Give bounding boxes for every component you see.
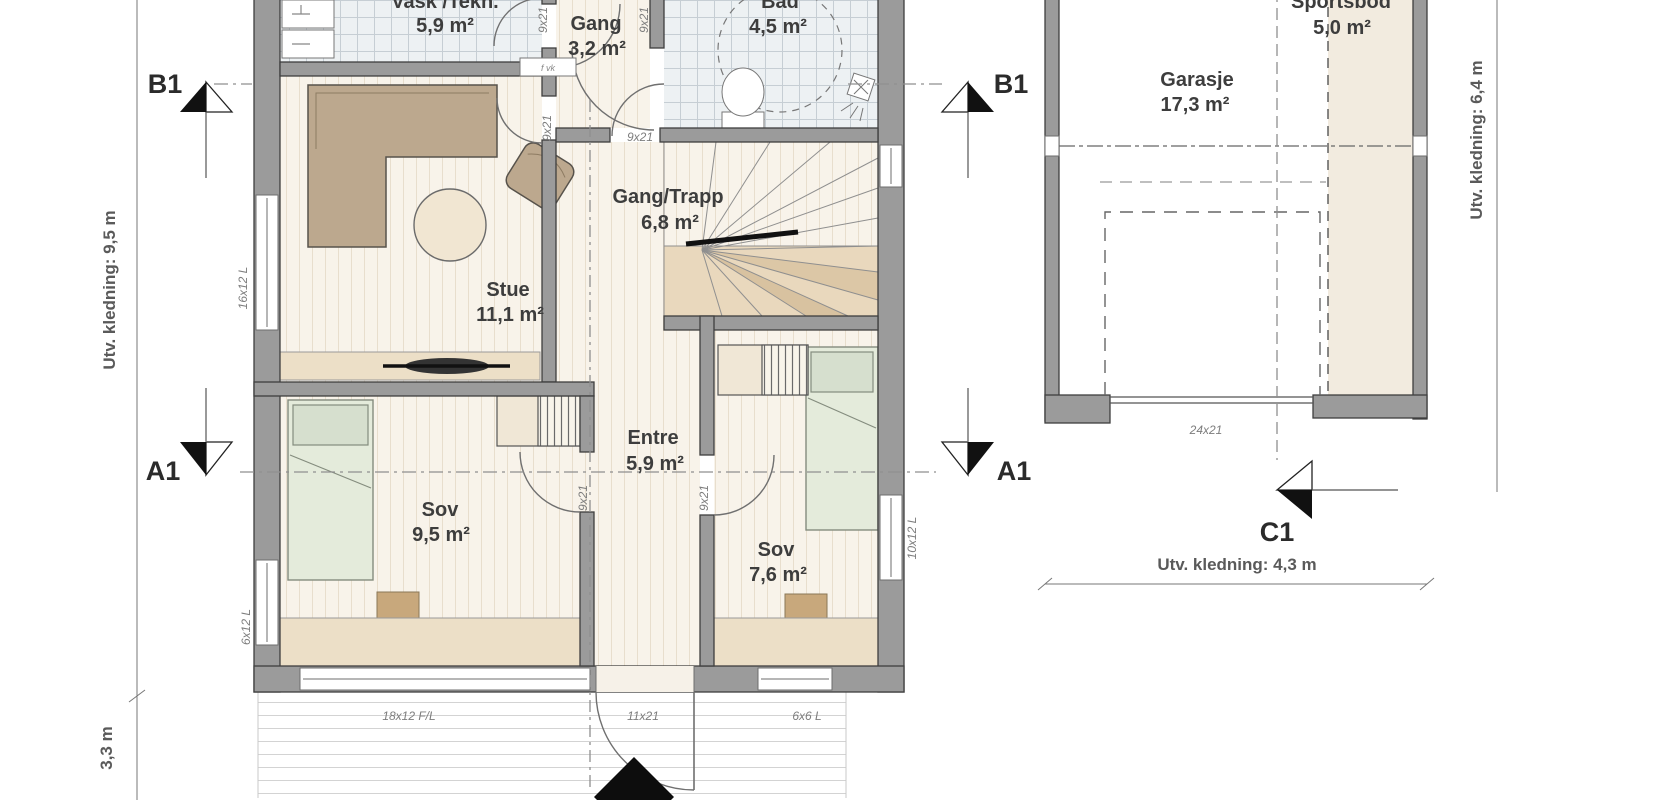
marker-label-c1: C1: [1260, 517, 1295, 547]
marker-label-b1: B1: [148, 69, 183, 99]
door-label-9x21: 9x21: [697, 485, 711, 511]
room-label-sov1: Sov: [422, 499, 460, 521]
room-label-gang-trapp: Gang/Trapp: [612, 186, 723, 208]
entry-door-threshold: [596, 666, 694, 692]
room-area-vask: 5,9 m²: [416, 15, 474, 37]
room-label-vask: Vask /Tekn.: [391, 0, 498, 13]
room-area-sov1: 9,5 m²: [412, 524, 470, 546]
bed-pillow: [293, 405, 368, 445]
room-area-bad: 4,5 m²: [749, 16, 807, 38]
room-label-stue: Stue: [486, 279, 529, 301]
section-marker-a1-left: A1: [146, 388, 232, 486]
room-area-gang-trapp: 6,8 m²: [641, 212, 699, 234]
toilet-bowl: [722, 68, 764, 116]
room-area-entre: 5,9 m²: [626, 453, 684, 475]
window-label-10x12: 10x12 L: [905, 517, 919, 560]
terrace-deck: [258, 692, 846, 798]
marker-label-a1: A1: [146, 456, 181, 486]
dim-label-garage-front: Utv. kledning: 4,3 m: [1157, 555, 1316, 574]
room-area-gang: 3,2 m²: [568, 38, 626, 60]
bed-pillow: [811, 352, 873, 392]
marker-label-b1: B1: [994, 69, 1029, 99]
section-marker-b1-right: B1: [942, 69, 1028, 178]
dim-label-right: Utv. kledning: 6,4 m: [1467, 60, 1486, 219]
floor-plan-page: B1 B1 A1 A1 C1 Vask /Tekn. 5,9 m² Gang: [0, 0, 1670, 800]
room-label-sportsbod: Sportsbod: [1291, 0, 1391, 13]
wardrobe-hatch: [538, 396, 580, 446]
room-area-sportsbod: 5,0 m²: [1313, 17, 1371, 39]
door-label-9x21: 9x21: [576, 485, 590, 511]
nightstand: [785, 594, 827, 620]
window-label-6x6: 6x6 L: [792, 709, 821, 723]
door-label-11x21: 11x21: [627, 709, 659, 723]
marker-label-a1: A1: [997, 456, 1032, 486]
sportsbod-floor: [1328, 0, 1413, 395]
dim-label-terrace: 3,3 m: [97, 726, 116, 769]
nightstand: [377, 592, 419, 618]
coffee-table: [414, 189, 486, 261]
room-area-stue: 11,1 m²: [476, 304, 544, 326]
door-label-9x21: 9x21: [627, 130, 653, 144]
window-benches: [280, 618, 878, 666]
dim-label-left: Utv. kledning: 9,5 m: [100, 210, 119, 369]
window-label-16x12: 16x12 L: [236, 267, 250, 310]
garage-plan: [1045, 0, 1427, 460]
garage-door-label-24x21: 24x21: [1189, 423, 1223, 437]
room-area-garasje: 17,3 m²: [1161, 94, 1230, 116]
room-label-sov2: Sov: [758, 539, 796, 561]
section-marker-a1-right: A1: [942, 388, 1031, 486]
wardrobe-hatch: [762, 345, 808, 395]
section-marker-b1-left: B1: [148, 69, 232, 178]
window-label-6x12: 6x12 L: [239, 609, 253, 645]
section-marker-c1: C1: [1260, 461, 1398, 547]
door-label-9x21: 9x21: [536, 7, 550, 33]
room-label-bad: Bad: [761, 0, 799, 13]
room-label-garasje: Garasje: [1160, 69, 1233, 91]
window-label-18x12: 18x12 F/L: [382, 709, 435, 723]
door-label-9x21: 9x21: [540, 115, 554, 141]
door-label-9x21: 9x21: [637, 7, 651, 33]
floor-plan-drawing: B1 B1 A1 A1 C1 Vask /Tekn. 5,9 m² Gang: [0, 0, 1670, 800]
room-label-entre: Entre: [627, 427, 678, 449]
room-area-sov2: 7,6 m²: [749, 564, 807, 586]
room-label-gang: Gang: [570, 13, 621, 35]
tech-box-label: f vk: [541, 63, 556, 73]
